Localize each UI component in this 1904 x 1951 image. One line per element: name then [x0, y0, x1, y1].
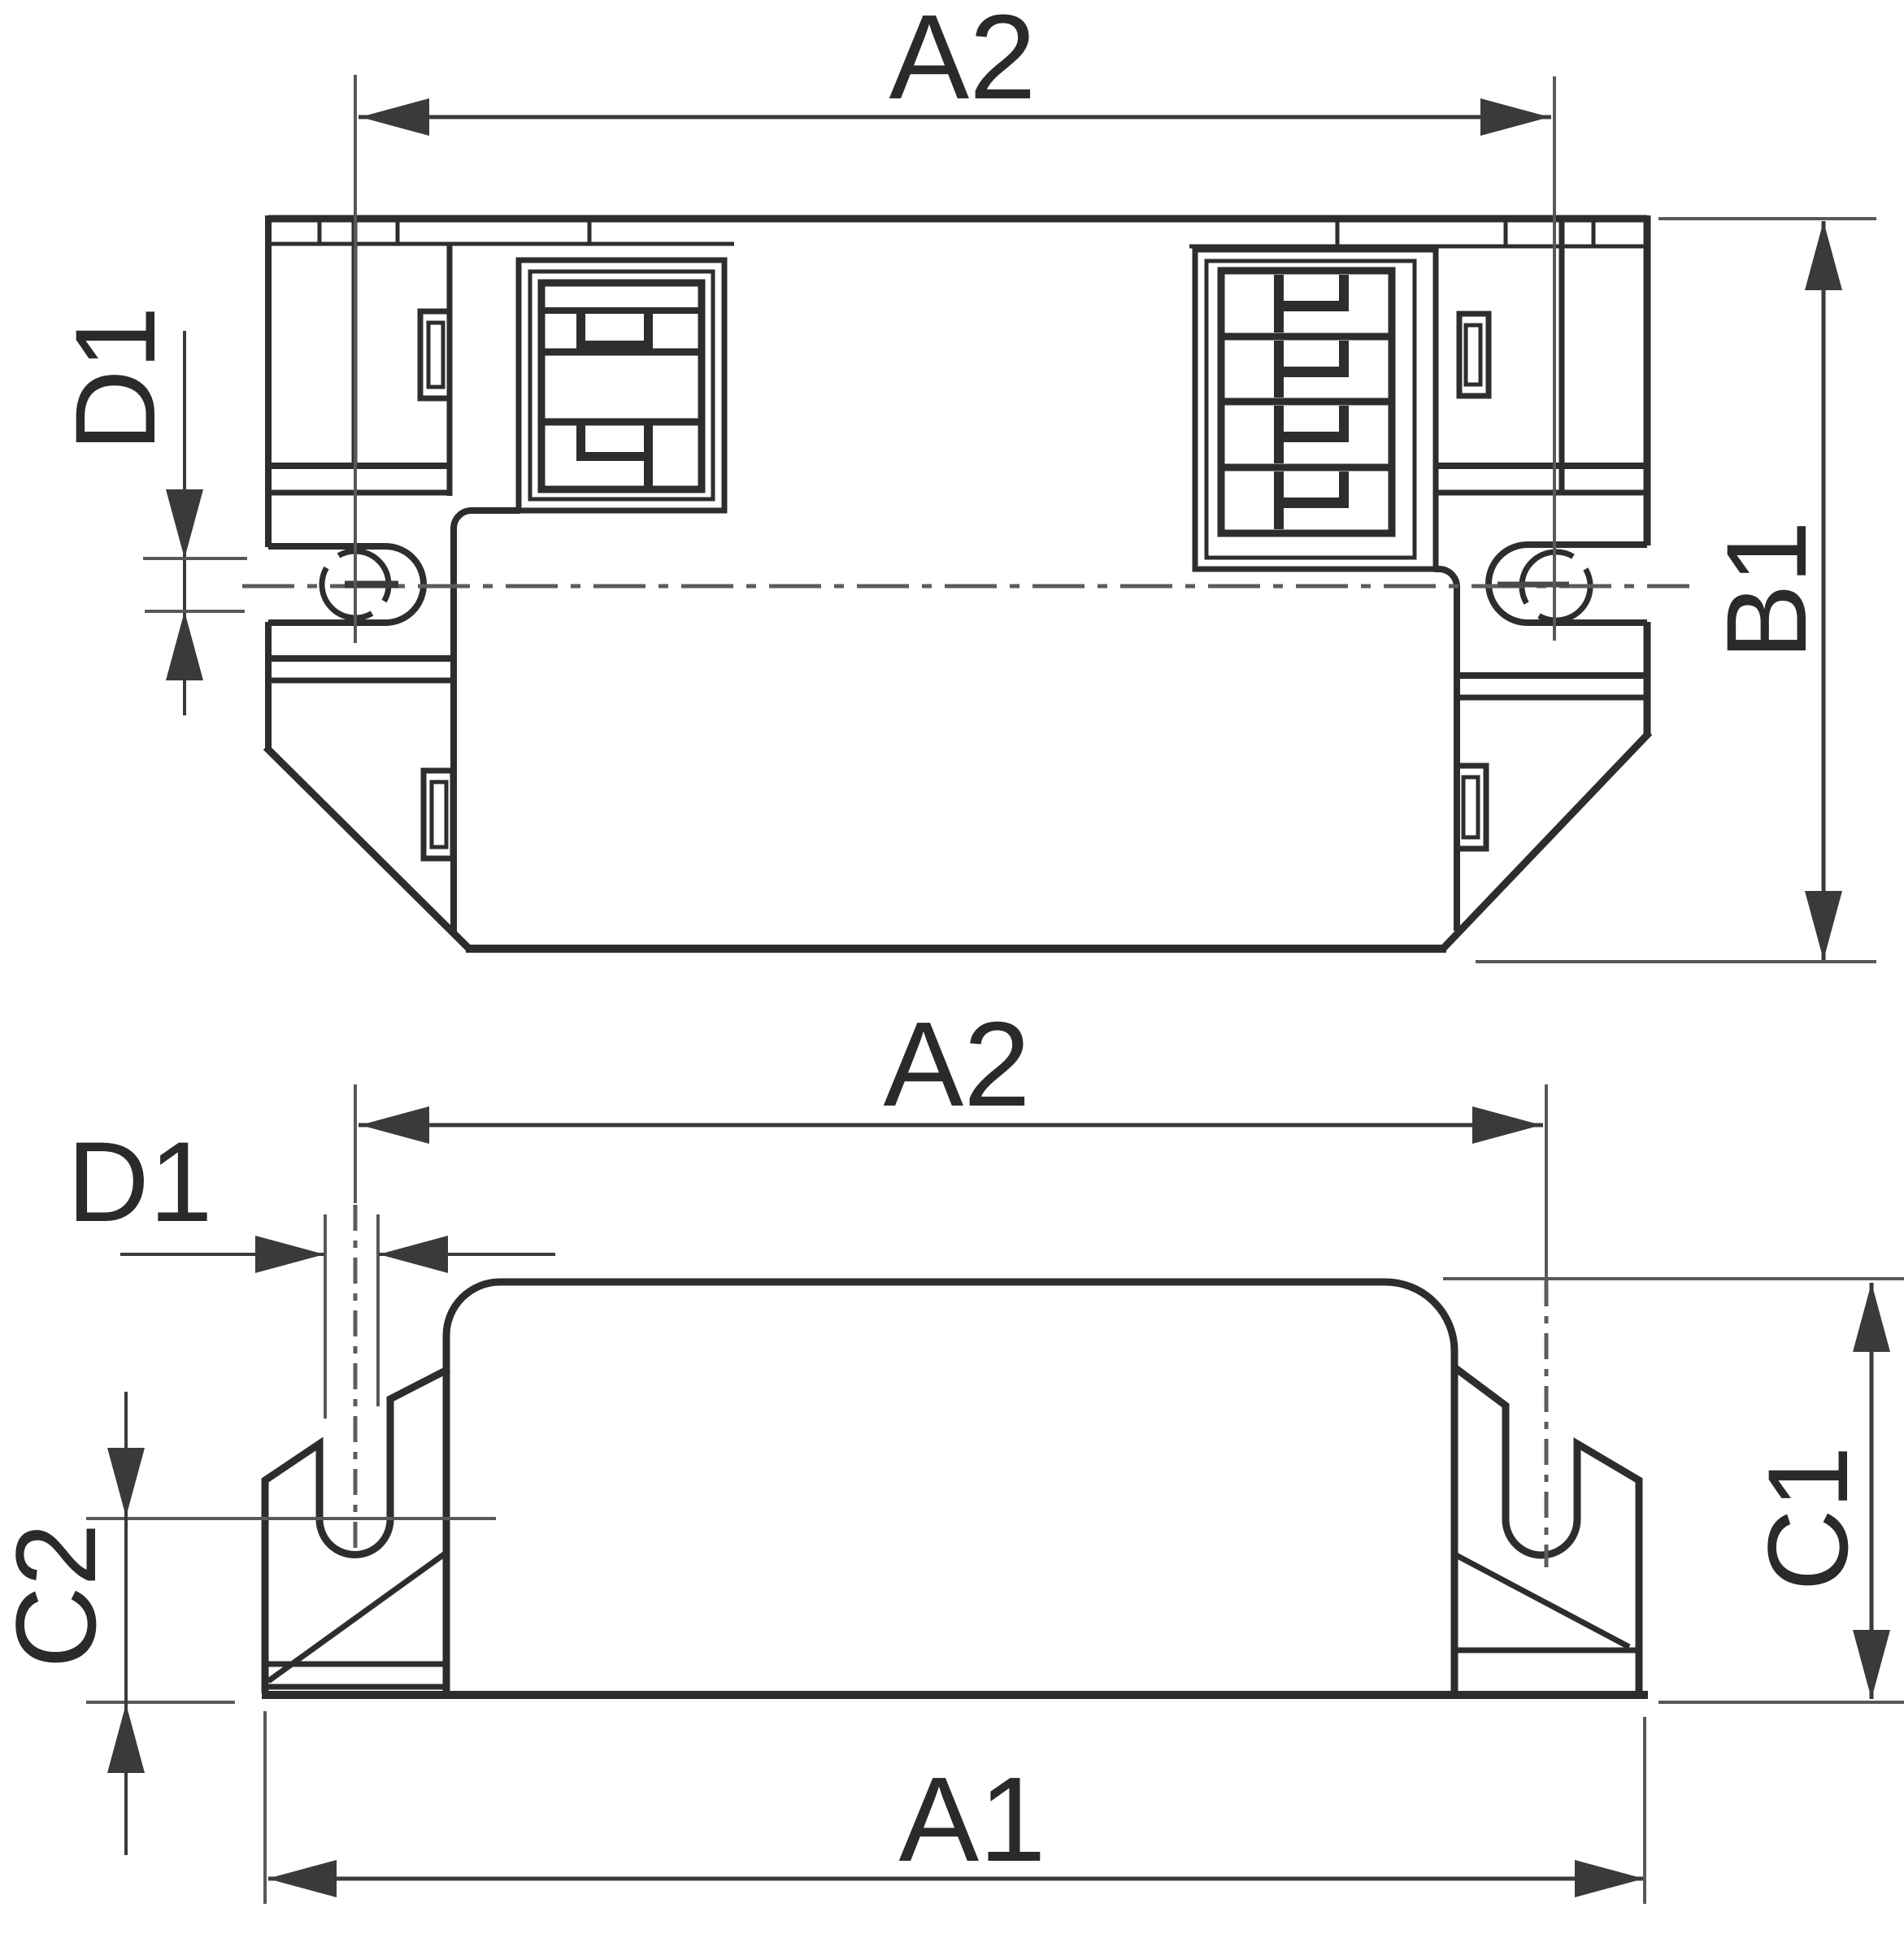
svg-text:A2: A2: [889, 0, 1036, 124]
svg-text:B1: B1: [1702, 520, 1830, 659]
svg-text:A1: A1: [898, 1753, 1045, 1887]
svg-text:D1: D1: [67, 1118, 213, 1245]
svg-text:D1: D1: [51, 306, 179, 452]
svg-text:C2: C2: [0, 1523, 120, 1669]
svg-text:C1: C1: [1744, 1446, 1871, 1592]
svg-text:A2: A2: [883, 997, 1030, 1132]
